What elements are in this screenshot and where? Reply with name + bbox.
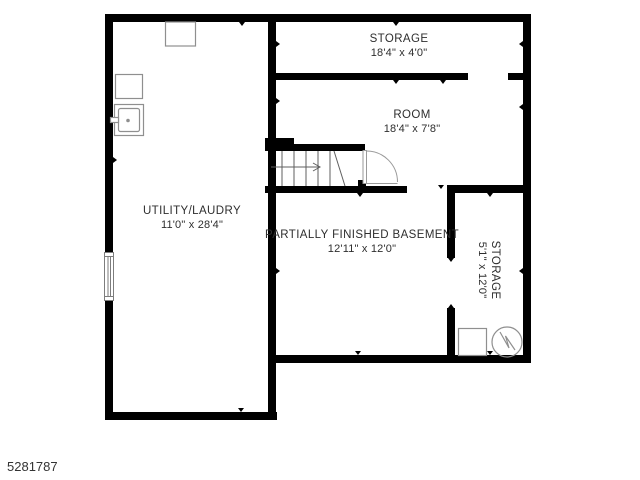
- chimney-box-icon: [166, 22, 196, 46]
- basement-label: PARTIALLY FINISHED BASEMENT: [265, 229, 459, 241]
- appliance-box-icon: [116, 75, 143, 99]
- storage-box-icon: [459, 329, 487, 356]
- sump-pump-icon: [492, 327, 522, 357]
- staircase-icon: [271, 151, 345, 186]
- wall-utility-bottom: [105, 412, 277, 420]
- storage-right-label: STORAGE: [489, 241, 501, 300]
- wall-left: [105, 14, 113, 420]
- wall-basement-storage-lower: [447, 308, 455, 355]
- stair-direction-arrow-icon: [271, 163, 320, 171]
- wall-room-storage-right: [447, 185, 523, 193]
- wall-storage-room-divider-stub: [508, 73, 523, 80]
- floor-plan-drawing: STORAGE 18'4" x 4'0" ROOM 18'4" x 7'8" U…: [0, 0, 640, 480]
- storage-right-dims: 5'1" x 12'0": [476, 242, 488, 299]
- storage-top-dims: 18'4" x 4'0": [371, 47, 428, 59]
- room-dims: 18'4" x 7'8": [384, 123, 441, 135]
- wall-stair-block: [265, 138, 294, 151]
- room-label: ROOM: [393, 109, 430, 121]
- wall-right: [523, 14, 531, 363]
- basement-dims: 12'11" x 12'0": [328, 243, 396, 255]
- floor-plan-page: STORAGE 18'4" x 4'0" ROOM 18'4" x 7'8" U…: [0, 0, 640, 480]
- room-labels: STORAGE 18'4" x 4'0" ROOM 18'4" x 7'8" U…: [143, 33, 501, 299]
- wall-top: [105, 14, 531, 22]
- wall-storage-room-divider: [268, 73, 468, 80]
- wall-basement-bottom: [268, 355, 531, 363]
- utility-label: UTILITY/LAUDRY: [143, 205, 241, 217]
- wall-stair-top: [294, 144, 365, 151]
- door-swing-icon: [363, 151, 398, 184]
- walls: [105, 14, 531, 420]
- window-icon: [105, 253, 114, 301]
- storage-top-label: STORAGE: [370, 33, 429, 45]
- laundry-sink-icon: [111, 105, 144, 136]
- wall-basement-storage-upper: [447, 193, 455, 258]
- wall-stair-bottom: [265, 186, 407, 193]
- utility-dims: 11'0" x 28'4": [161, 219, 223, 231]
- listing-ref-number: 5281787: [7, 459, 58, 474]
